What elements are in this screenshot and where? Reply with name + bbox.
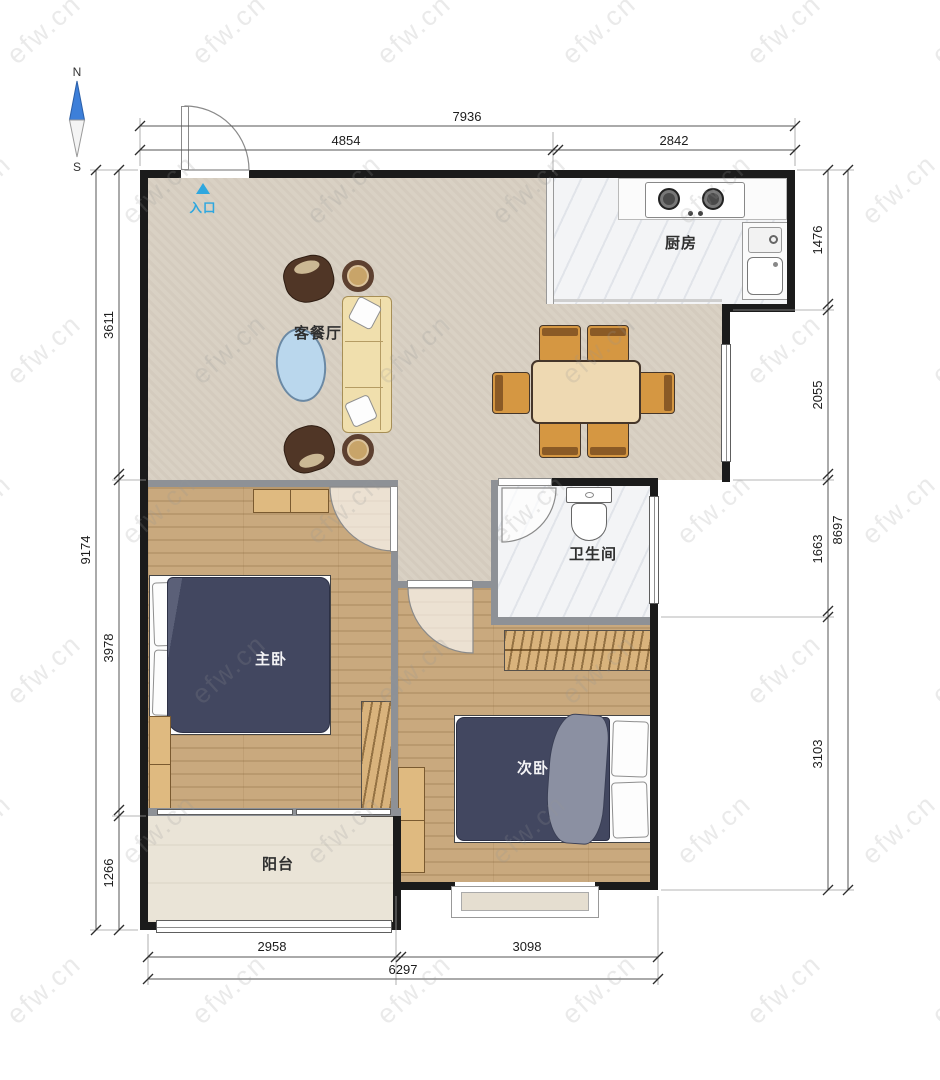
- master-bedroom-label: 主卧: [241, 648, 301, 669]
- living-dining-label: 客餐厅: [278, 322, 358, 343]
- bathroom-label: 卫生间: [553, 543, 633, 564]
- floorplan-page: N S: [0, 0, 940, 1080]
- master-door-arc: [330, 487, 394, 551]
- door-swing-arcs: [0, 0, 940, 1080]
- second-bedroom-door-leaf: [407, 580, 473, 588]
- master-door-leaf: [390, 486, 398, 552]
- entry-label: 入口: [180, 197, 226, 216]
- entry-door-leaf: [181, 106, 189, 170]
- second-bedroom-door-arc: [408, 588, 473, 653]
- balcony-label: 阳台: [248, 853, 308, 874]
- second-bedroom-label: 次卧: [503, 757, 563, 778]
- entry-door-arc: [185, 106, 249, 170]
- kitchen-label: 厨房: [651, 232, 711, 253]
- bathroom-door-leaf: [498, 478, 552, 486]
- bathroom-door-arc: [502, 488, 556, 542]
- entry-arrow-icon: [196, 183, 210, 194]
